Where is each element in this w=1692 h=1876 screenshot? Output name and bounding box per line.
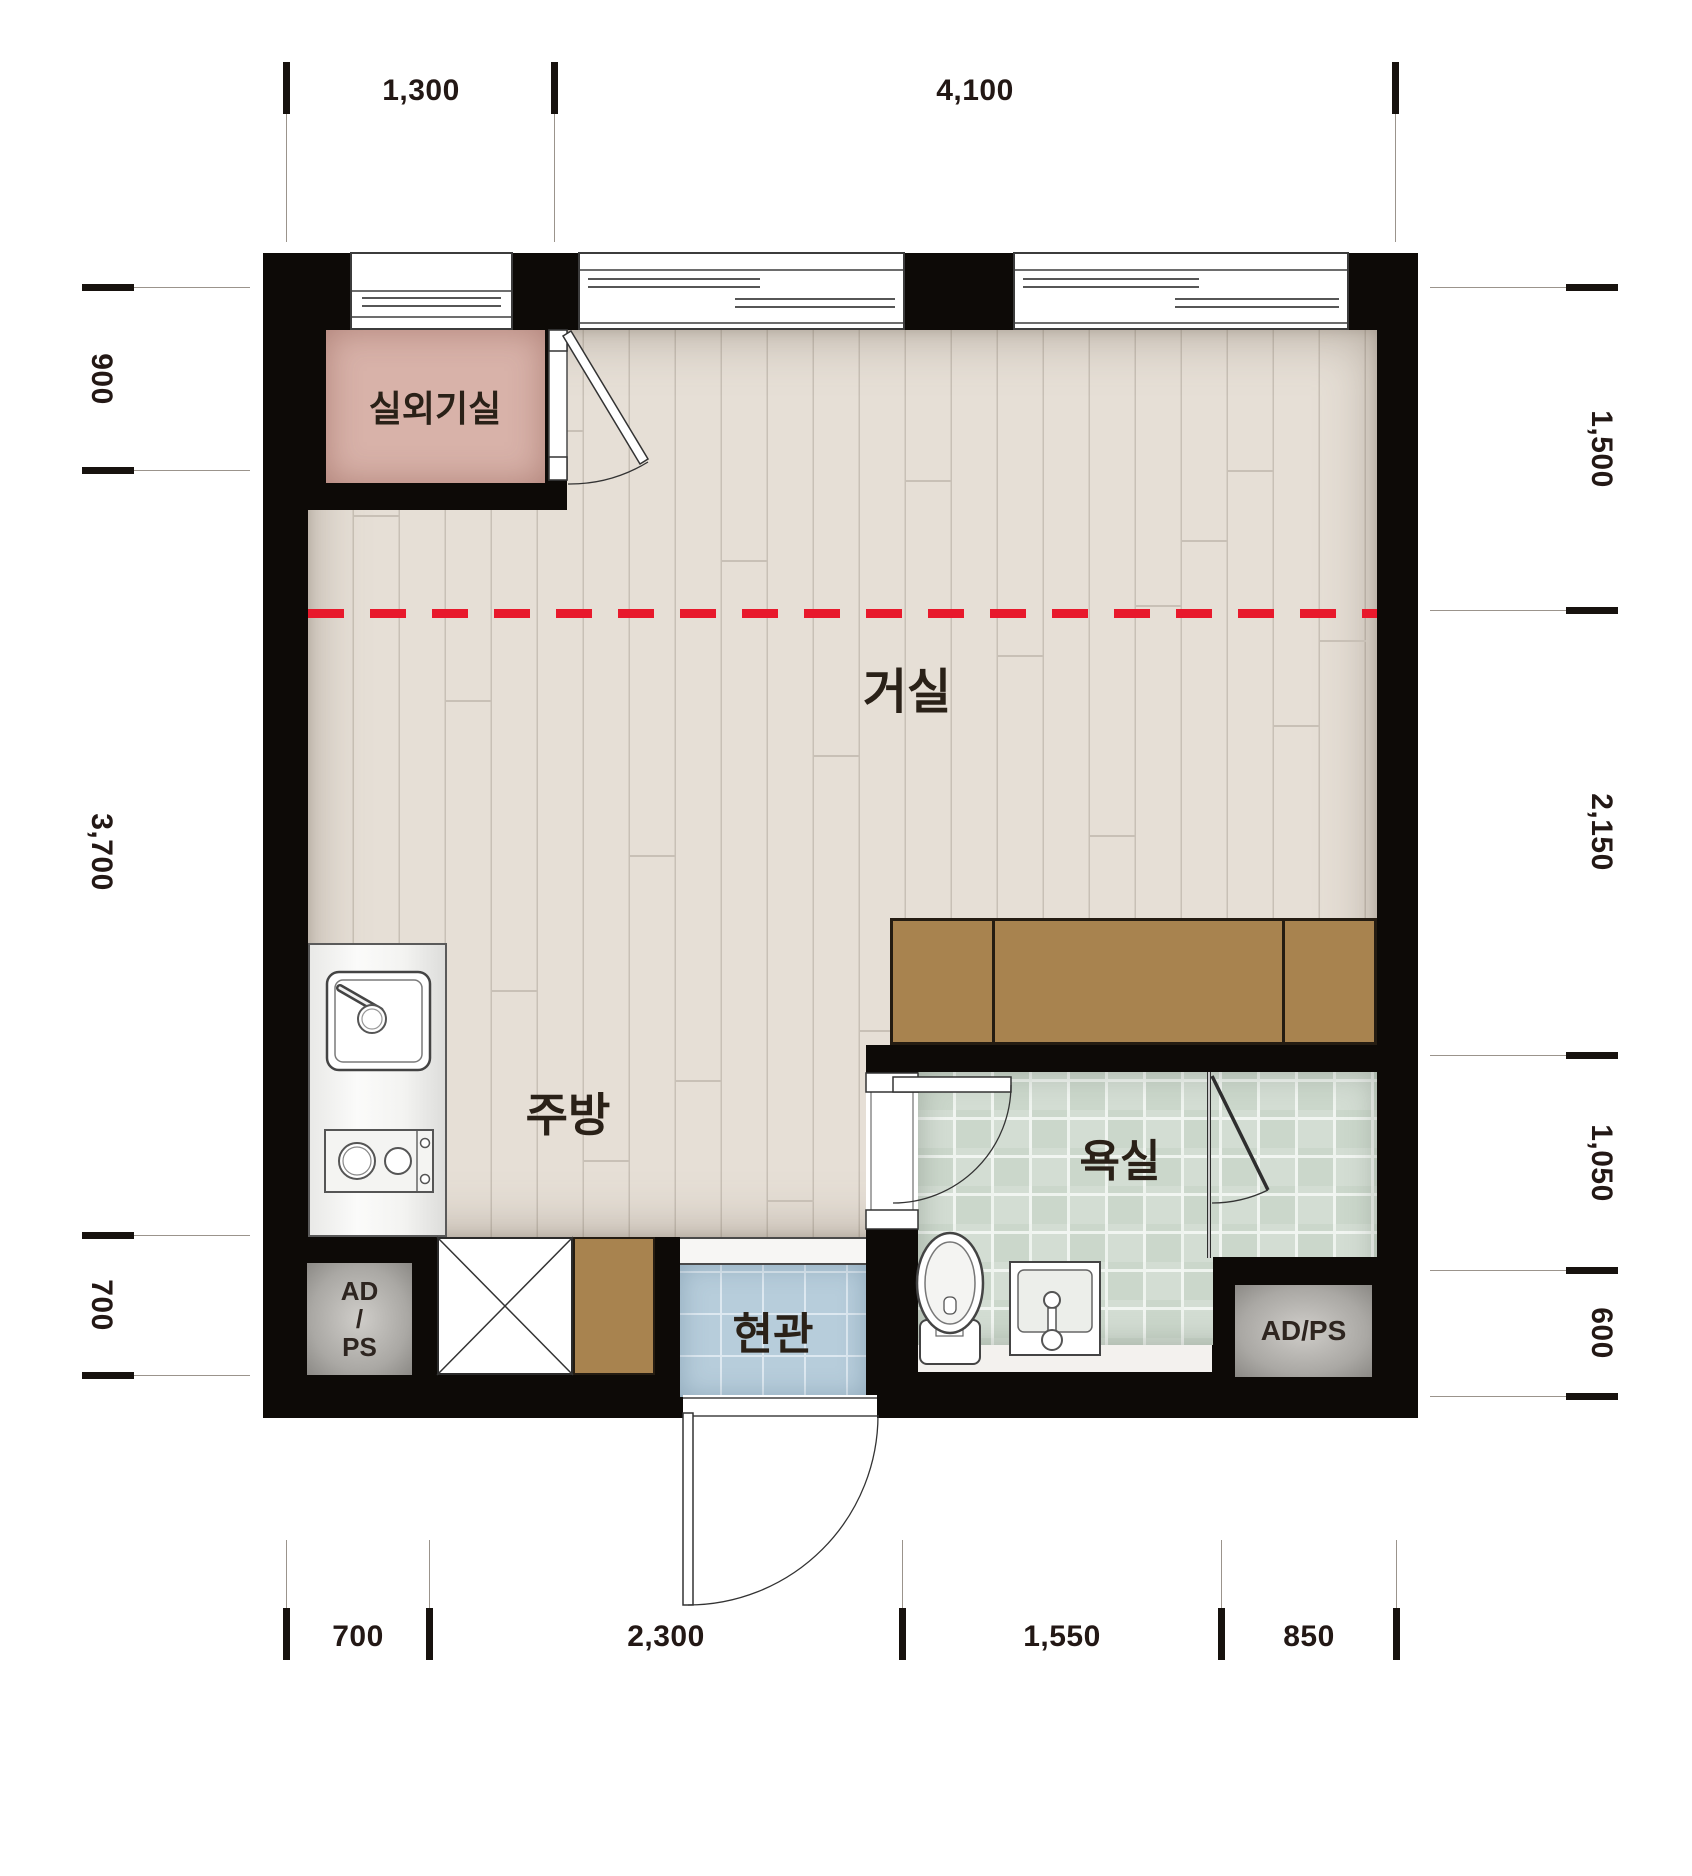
label-kitchen: 주방 [526,1079,611,1145]
label-bathroom: 욕실 [1080,1125,1161,1189]
duct-shaft-x [437,1237,573,1375]
kitchen-sink [327,972,430,1070]
shower-partition-door [1209,1072,1268,1258]
bathroom-door [866,1073,1011,1229]
label-outdoor-unit: 실외기실 [369,380,501,432]
bathroom-sink [1010,1262,1100,1355]
fixtures-overlay [0,0,1692,1876]
outdoor-unit-door [549,330,648,484]
toilet [917,1233,983,1364]
front-door [683,1395,878,1605]
stove-cooktop [325,1130,433,1192]
label-living-room: 거실 [863,652,951,722]
label-entrance: 현관 [733,1298,814,1362]
floor-plan-canvas: 1,300 4,100 700 2,300 1,550 850 900 3,70… [0,0,1692,1876]
